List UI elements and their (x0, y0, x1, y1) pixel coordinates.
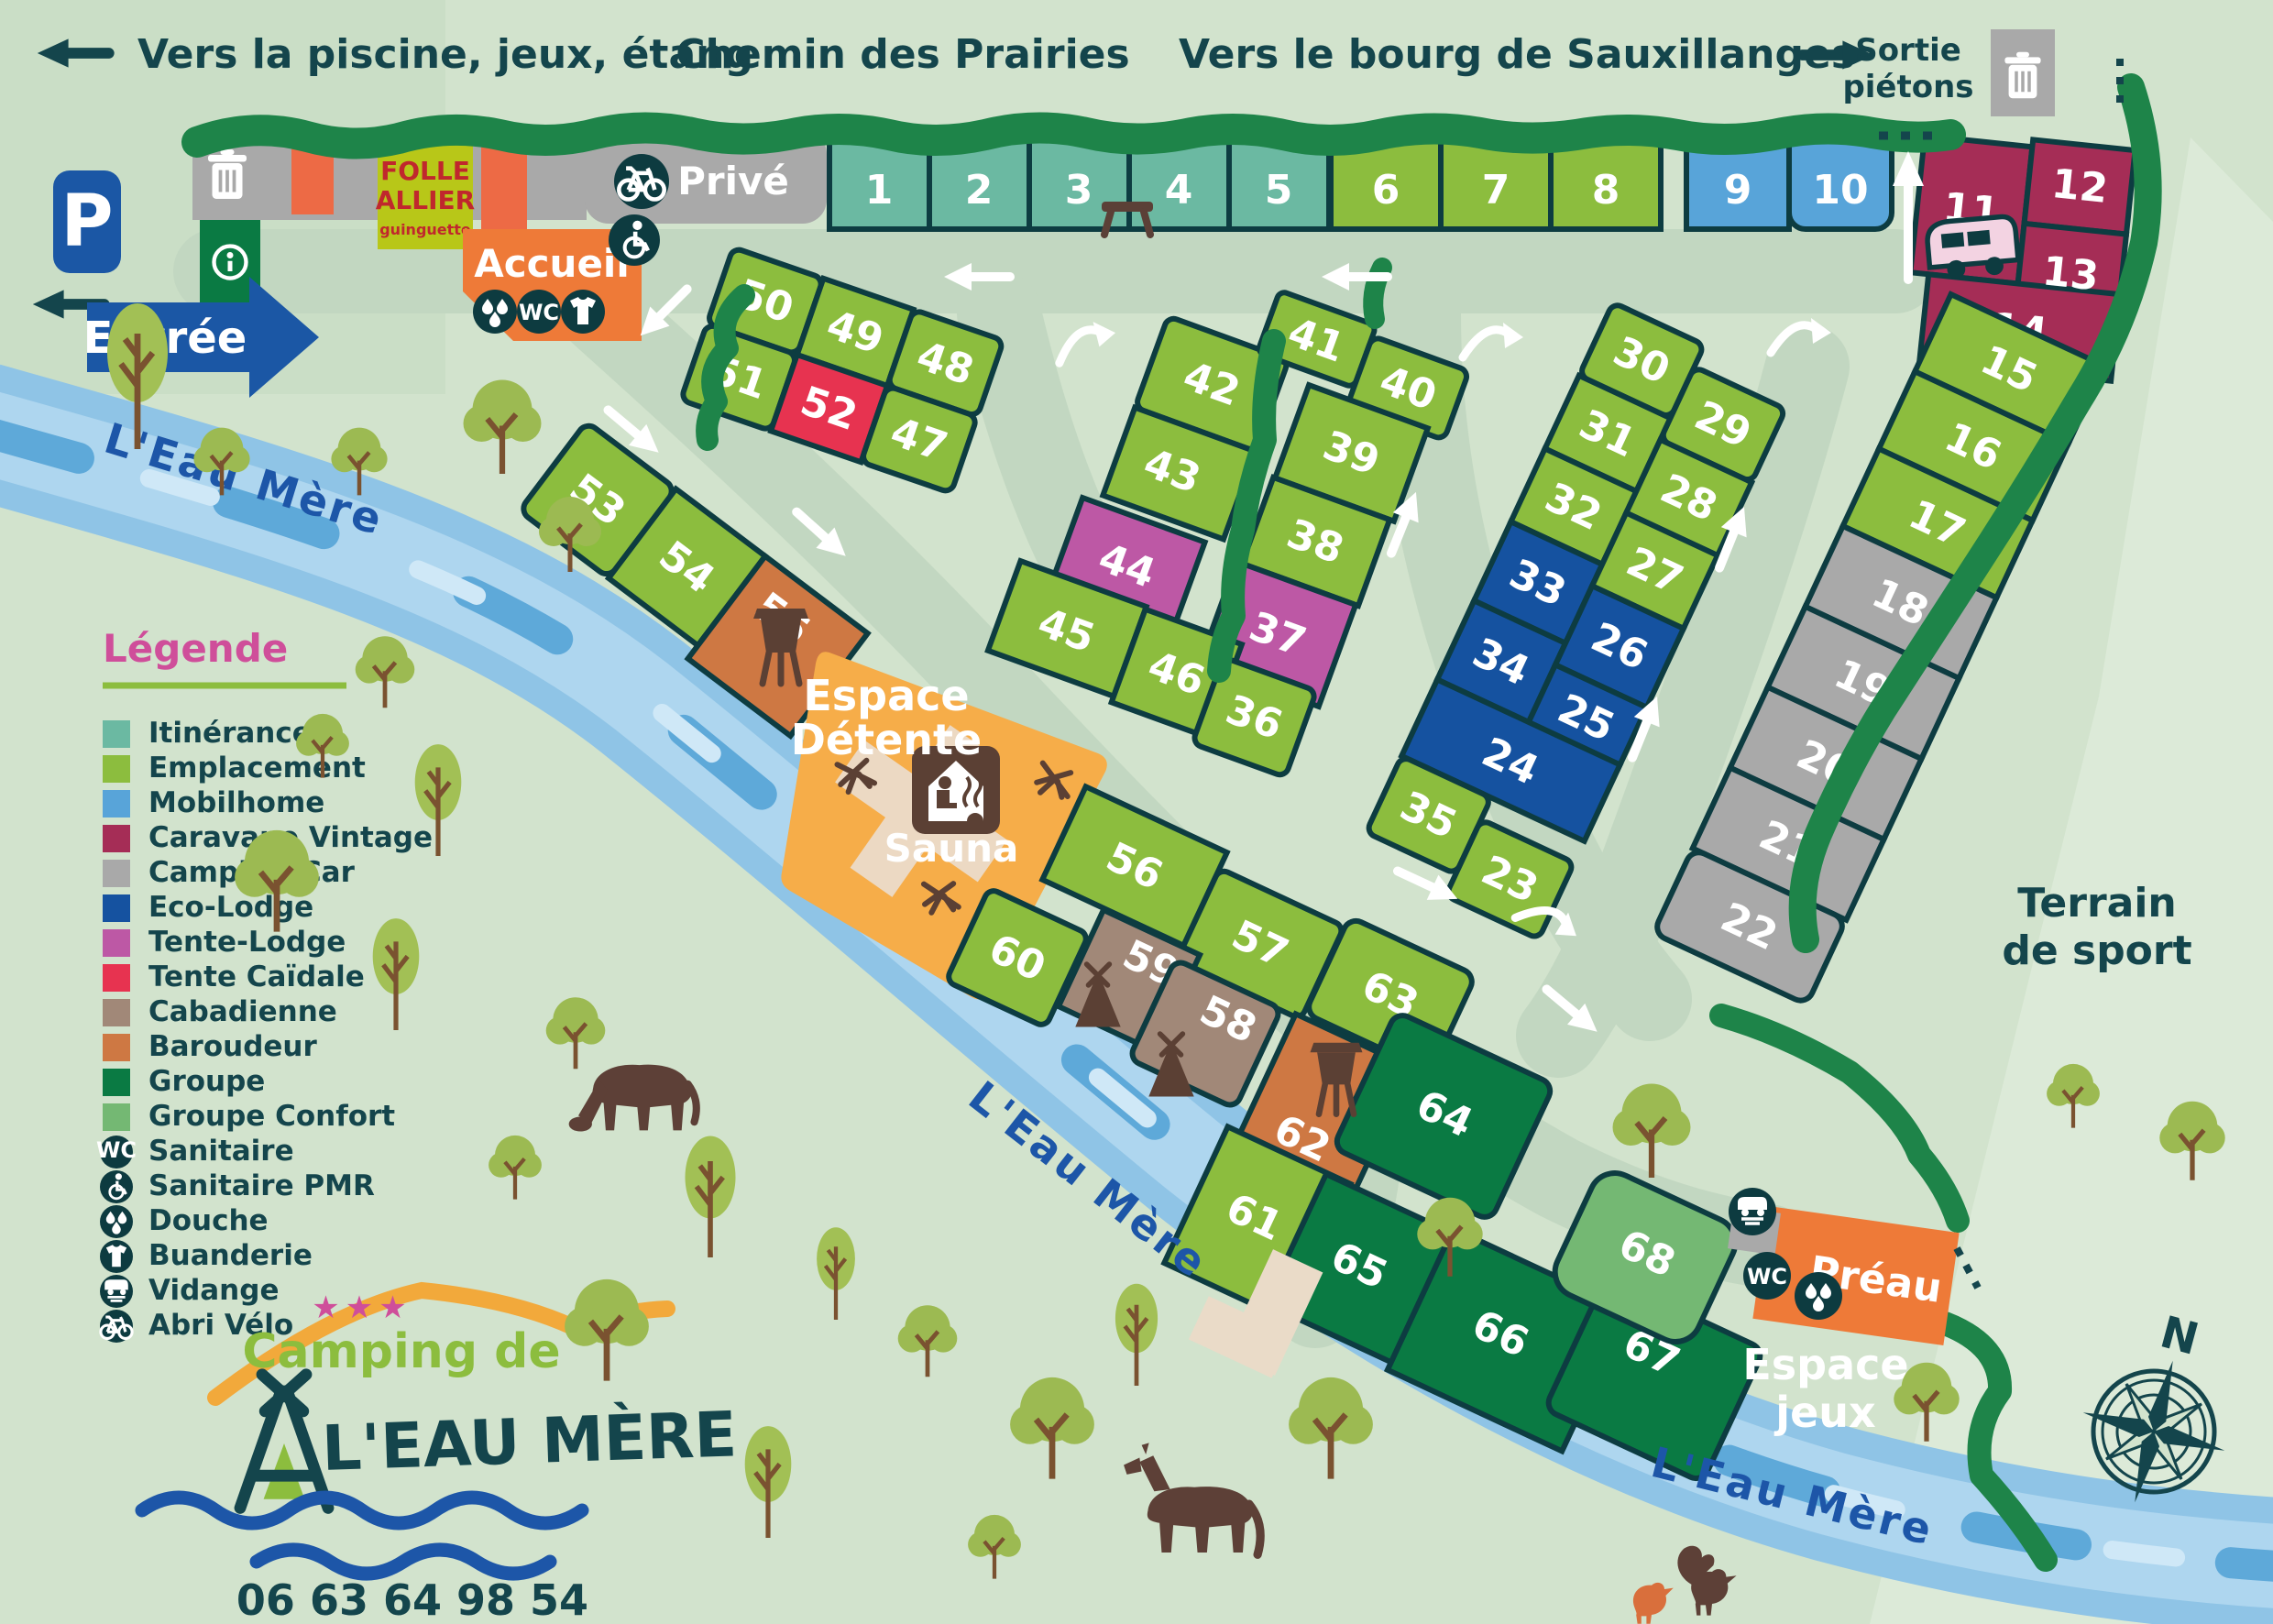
legend-item: Douche (100, 1204, 269, 1238)
exit-label-1: Sortie (1855, 32, 1961, 69)
logo-phone: 06 63 64 98 54 (236, 1575, 588, 1624)
legend-item: WCSanitaire (96, 1135, 294, 1169)
sport-field-label-1: Terrain (2017, 880, 2177, 927)
plot-5-label: 5 (1265, 167, 1293, 214)
play-area-label-1: Espace (1742, 1340, 1908, 1389)
trash-icon-exit (2004, 52, 2040, 98)
plot-3-label: 3 (1065, 167, 1093, 214)
legend-label: Sanitaire (148, 1135, 294, 1168)
relax-area-label-1: Espace (803, 671, 969, 720)
sauna-label: Sauna (884, 826, 1019, 871)
sign-to-pool: Vers la piscine, jeux, étang (137, 31, 753, 78)
legend-label: Groupe Confort (148, 1100, 395, 1133)
wheelchair-icon (609, 214, 660, 266)
bike-shelter-icon (614, 154, 669, 209)
bike-icon-legend (100, 1310, 133, 1343)
drain-icon (1729, 1188, 1776, 1235)
guinguette-line1: FOLLE (380, 156, 470, 186)
sign-to-town: Vers le bourg de Sauxillanges (1179, 31, 1855, 78)
legend-label: Tente Caïdale (148, 960, 365, 993)
trash-icon (208, 149, 247, 199)
laundry-icon-legend (100, 1240, 133, 1273)
logo-line2: L'EAU MÈRE (321, 1398, 738, 1486)
wc-icon-shelter-text: WC (1747, 1264, 1787, 1289)
plot-13-label: 13 (2040, 247, 2101, 300)
guinguette-line3: guinguette (379, 221, 471, 238)
legend-label: Eco-Lodge (148, 891, 313, 924)
plot-6-label: 6 (1372, 167, 1400, 214)
shower-icon (473, 290, 517, 334)
wc-icon: WC (517, 290, 561, 334)
legend-label: Tente-Lodge (148, 926, 346, 959)
reception-building: Accueil WC (463, 214, 660, 341)
legend-label: Groupe (148, 1065, 265, 1098)
legend-label: Mobilhome (148, 786, 324, 819)
legend-label: Itinérance (148, 717, 312, 750)
plot-9-label: 9 (1724, 167, 1752, 214)
campground-map: Privé FOLLE ALLIER guinguette 1 2 3 4 5 … (0, 0, 2273, 1624)
relax-area-label-2: Détente (791, 715, 983, 764)
plot-7-label: 7 (1482, 167, 1510, 214)
plot-2-label: 2 (965, 167, 994, 214)
legend-label: Emplacement (148, 752, 366, 785)
plot-4-label: 4 (1165, 167, 1193, 214)
play-area-label-2: jeux (1773, 1388, 1875, 1437)
legend-label: Buanderie (148, 1239, 313, 1272)
parking-letter: P (60, 181, 113, 263)
legend-title: Légende (103, 626, 288, 671)
legend-label: Vidange (148, 1274, 279, 1307)
legend-label: Baroudeur (148, 1030, 317, 1063)
plot-8-label: 8 (1592, 167, 1620, 214)
logo-line1: Camping de (242, 1324, 560, 1379)
logo-stars: ★★★ (312, 1289, 412, 1326)
wc-icon-shelter: WC (1743, 1252, 1791, 1300)
legend-item: Groupe (103, 1065, 265, 1098)
wc-icon-legend-text: WC (96, 1137, 137, 1163)
guinguette-line2: ALLIER (376, 185, 475, 215)
legend-item: Vidange (100, 1274, 279, 1308)
legend-label: Sanitaire PMR (148, 1169, 375, 1202)
shower-icon-legend (100, 1205, 133, 1238)
wc-icon-text: WC (519, 300, 559, 325)
prive-label: Privé (677, 159, 789, 203)
sport-field-label-2: de sport (2002, 927, 2191, 974)
plot-10-label: 10 (1812, 167, 1868, 214)
drain-icon-legend (100, 1275, 133, 1308)
plot-12-label: 12 (2049, 160, 2110, 213)
laundry-icon (561, 290, 605, 334)
reception-label: Accueil (474, 241, 629, 286)
wheelchair-icon-legend (100, 1170, 133, 1203)
plot-1-label: 1 (865, 167, 894, 214)
exit-label-2: piétons (1842, 69, 1973, 105)
legend-label: Douche (148, 1204, 269, 1237)
shower-icon-shelter (1795, 1272, 1842, 1320)
legend-label: Cabadienne (148, 995, 337, 1028)
sign-road-name: Chemin des Prairies (675, 31, 1129, 78)
